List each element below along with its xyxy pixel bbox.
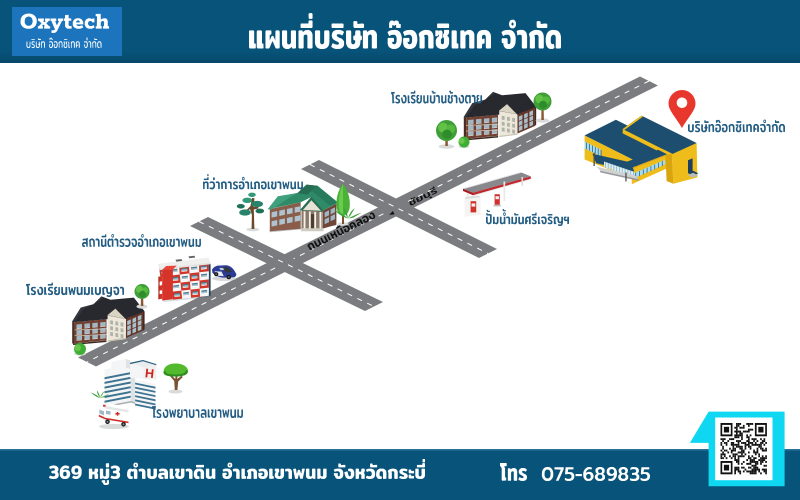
svg-text:H: H xyxy=(144,366,154,381)
